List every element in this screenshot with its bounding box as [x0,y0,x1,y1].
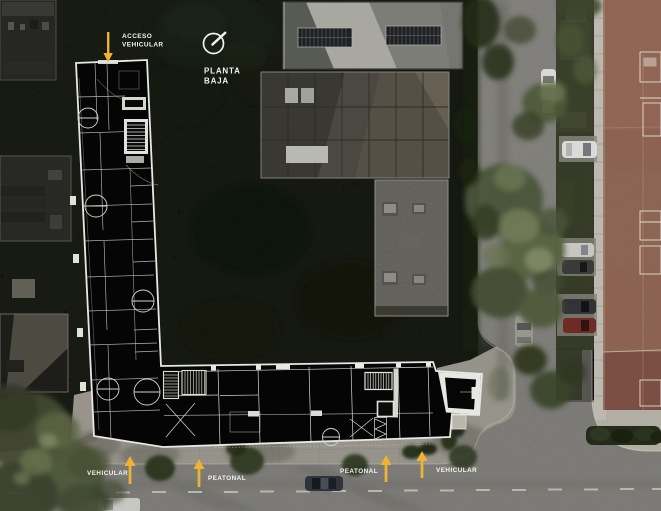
svg-text:VEHICULAR: VEHICULAR [436,467,477,474]
svg-text:VEHICULAR: VEHICULAR [87,470,128,477]
svg-text:VEHICULAR: VEHICULAR [122,42,164,49]
svg-text:ACCESO: ACCESO [122,33,152,40]
svg-text:PLANTA: PLANTA [204,67,241,76]
svg-text:PEATONAL: PEATONAL [340,468,378,475]
svg-text:BAJA: BAJA [204,77,229,86]
svg-text:PEATONAL: PEATONAL [208,475,246,482]
